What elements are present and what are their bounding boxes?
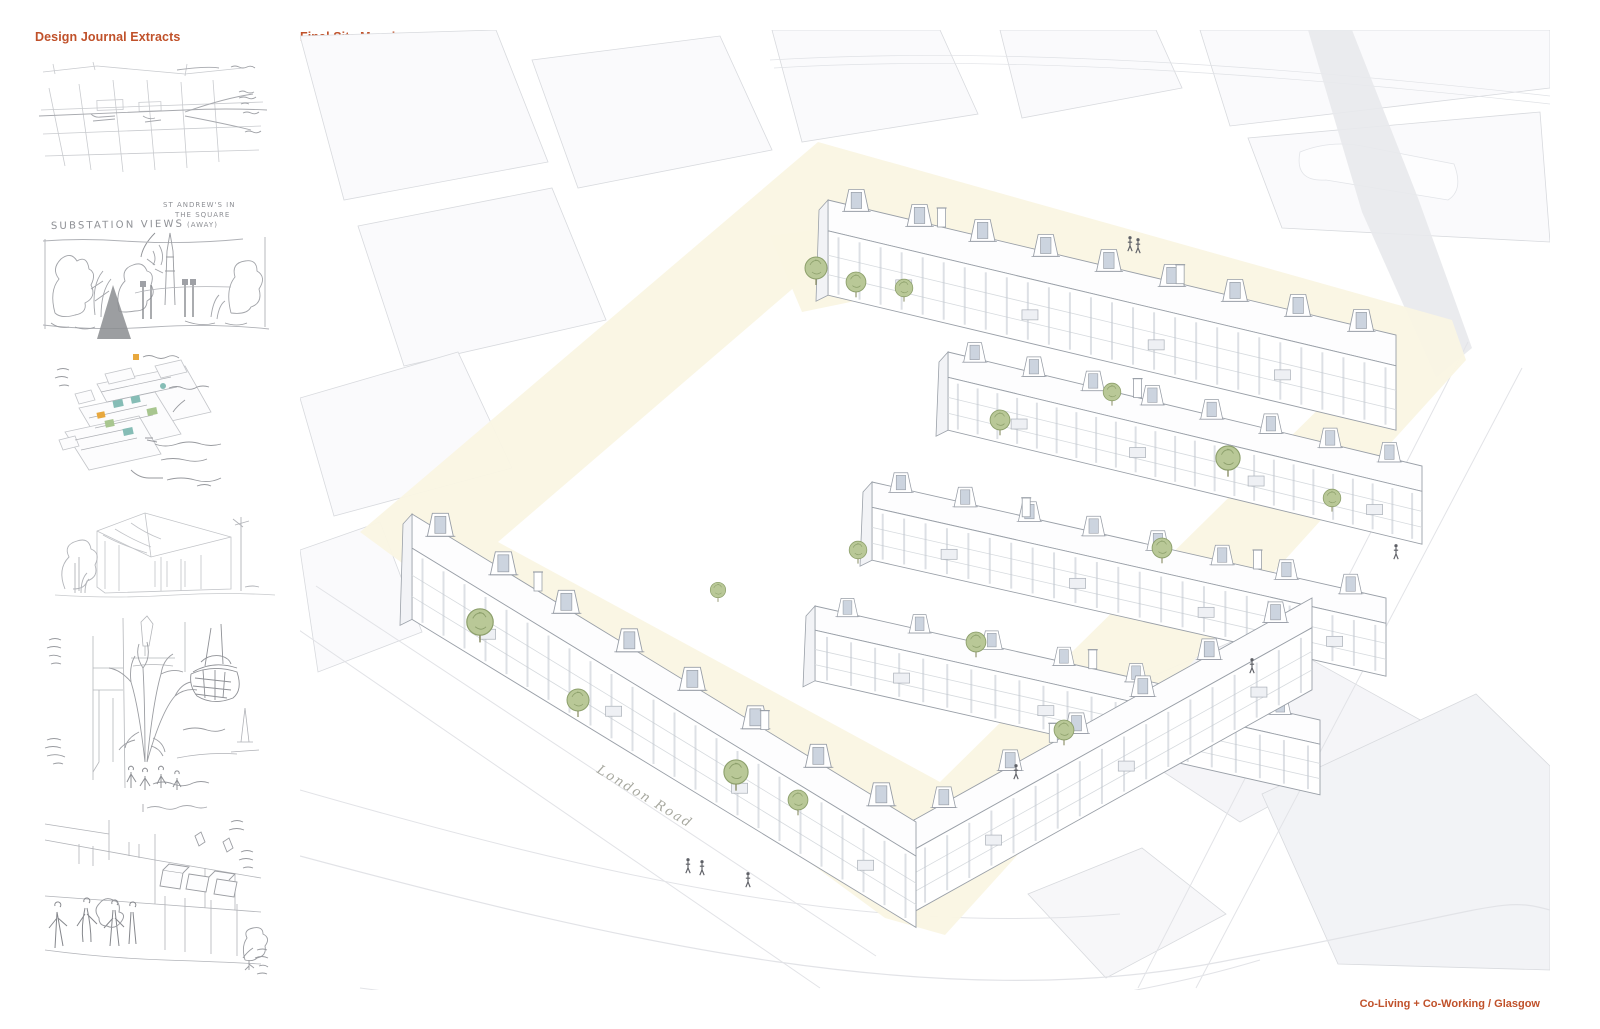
- caption-scribble: [147, 806, 207, 810]
- substation-views-sketch: SUBSTATION VIEWS ST ANDREW'S IN THE SQUA…: [35, 193, 275, 343]
- plan-annotation-scribbles: [231, 66, 261, 133]
- presentation-board: Design Journal Extracts Final Site Massi…: [0, 0, 1600, 1029]
- courtyard-perspective-sketch: [35, 800, 275, 986]
- svg-text:THE SQUARE: THE SQUARE: [174, 211, 230, 219]
- final-site-massing-drawing: London Road: [300, 30, 1550, 990]
- street-elevation-drawing: [35, 497, 275, 605]
- site-plan-sketch: [35, 58, 270, 178]
- substation-views-label: SUBSTATION VIEWS: [51, 219, 184, 232]
- street-elevation-sketch: [35, 497, 275, 605]
- massing-axonometric-sketch: [35, 348, 275, 490]
- project-footer: Co-Living + Co-Working / Glasgow: [1360, 998, 1540, 1010]
- site-plan-sketch-drawing: [35, 58, 270, 178]
- substation-views-drawing: SUBSTATION VIEWS ST ANDREW'S IN THE SQUA…: [35, 193, 275, 343]
- design-journal-heading: Design Journal Extracts: [35, 30, 180, 44]
- winter-garden-sketch: [35, 612, 275, 800]
- winter-garden-drawing: [35, 612, 275, 800]
- garden-annotation-scribbles: [45, 639, 225, 786]
- svg-text:(AWAY): (AWAY): [187, 221, 218, 229]
- courtyard-perspective-drawing: [35, 800, 275, 986]
- svg-text:ST ANDREW'S IN: ST ANDREW'S IN: [163, 201, 235, 209]
- massing-axonometric-drawing: [35, 348, 275, 490]
